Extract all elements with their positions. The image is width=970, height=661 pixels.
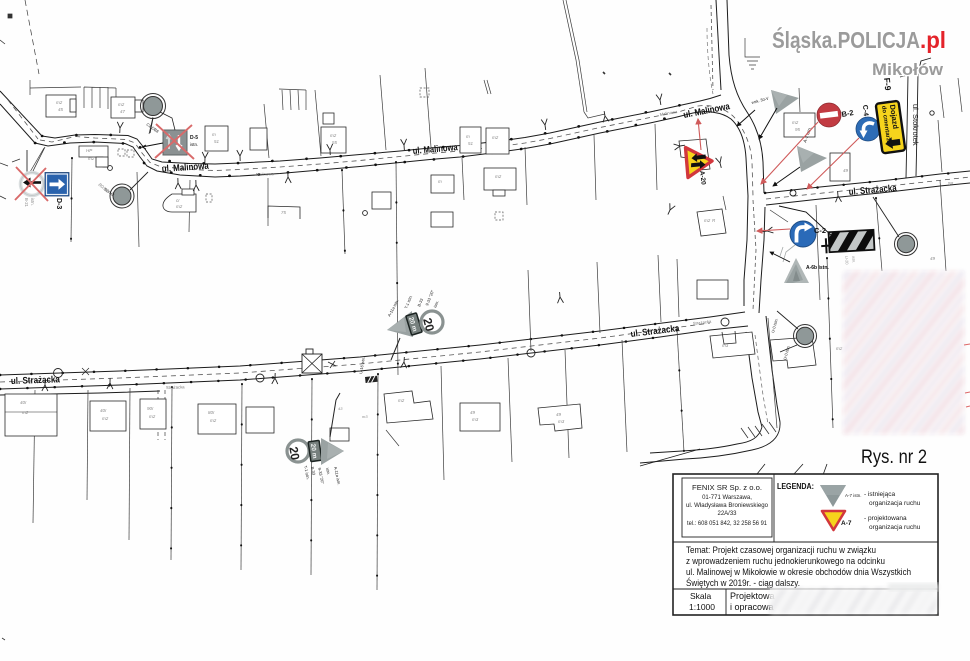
svg-text:istn.: istn. (190, 142, 198, 147)
svg-text:20: 20 (286, 446, 302, 462)
svg-text:Skala: Skala (690, 591, 712, 601)
svg-text:49: 49 (470, 410, 476, 415)
svg-text:55: 55 (332, 140, 338, 145)
svg-text:Strażacka: Strażacka (166, 384, 185, 390)
svg-text:m2: m2 (56, 100, 63, 105)
svg-text:m2: m2 (22, 410, 29, 415)
svg-text:C-2: C-2 (814, 226, 826, 235)
svg-text:m2: m2 (704, 218, 711, 223)
svg-text:80r: 80r (208, 410, 215, 415)
svg-text:Temat: Projekt czasowej organi: Temat: Projekt czasowej organizacji ruch… (686, 545, 876, 556)
svg-text:ul. Strażacka: ul. Strażacka (11, 374, 61, 387)
svg-text:m3: m3 (362, 414, 368, 419)
svg-text:m2: m2 (88, 156, 95, 161)
svg-text:m2: m2 (118, 102, 125, 107)
svg-text:22A/33: 22A/33 (717, 511, 737, 517)
svg-text:- projektowana: - projektowana (864, 515, 907, 522)
svg-text:C-4: C-4 (861, 105, 869, 117)
svg-text:istn.: istn. (30, 198, 35, 206)
svg-text:U-20: U-20 (844, 256, 850, 266)
svg-text:.pl: .pl (920, 27, 946, 53)
svg-text:49: 49 (556, 412, 562, 417)
svg-text:i opracowa: i opracowa (730, 602, 774, 612)
svg-text:Świętych w 2019r. - ciąg dalsz: Świętych w 2019r. - ciąg dalszy. (686, 577, 800, 589)
svg-text:m3: m3 (558, 419, 565, 424)
svg-text:75: 75 (281, 210, 287, 215)
svg-text:49: 49 (930, 256, 936, 261)
svg-text:m3: m3 (722, 343, 729, 348)
svg-text:D-5: D-5 (190, 135, 198, 141)
svg-text:90r: 90r (147, 406, 154, 411)
svg-text:istn.: istn. (851, 256, 857, 264)
svg-text:01-771 Warszawa,: 01-771 Warszawa, (702, 495, 752, 501)
svg-text:F-9: F-9 (882, 77, 893, 91)
svg-text:43: 43 (338, 406, 343, 411)
svg-text:m2: m2 (330, 133, 337, 138)
svg-text:Projektowa: Projektowa (730, 591, 775, 601)
svg-text:40r: 40r (20, 400, 27, 405)
svg-text:A-6b istn.: A-6b istn. (806, 265, 829, 271)
svg-text:m2: m2 (149, 414, 156, 419)
svg-text:m2: m2 (398, 398, 405, 403)
svg-text:m: m (212, 132, 216, 137)
svg-text:m: m (466, 134, 470, 139)
svg-text:m2: m2 (176, 204, 183, 209)
svg-text:m2: m2 (492, 135, 499, 140)
svg-text:A-7 istn.: A-7 istn. (845, 493, 862, 498)
svg-text:m2: m2 (210, 418, 217, 423)
svg-text:m2: m2 (836, 346, 843, 351)
svg-text:ul. Stokrotek: ul. Stokrotek (911, 104, 920, 146)
svg-text:- istniejąca: - istniejąca (864, 491, 895, 498)
svg-text:m2: m2 (102, 416, 109, 421)
svg-text:Malinowa: Malinowa (256, 171, 275, 177)
svg-text:HP: HP (86, 148, 92, 153)
svg-text:m2: m2 (792, 120, 799, 125)
svg-text:z wprowadzeniem ruchu jednokie: z wprowadzeniem ruchu jednokierunkowego … (686, 556, 885, 567)
svg-text:51: 51 (214, 139, 220, 144)
svg-text:95: 95 (795, 127, 801, 132)
svg-text:LEGENDA:: LEGENDA: (777, 481, 814, 491)
svg-text:organizacja ruchu: organizacja ruchu (869, 500, 921, 507)
svg-text:Rys. nr 2: Rys. nr 2 (861, 447, 927, 468)
svg-text:45: 45 (58, 107, 64, 112)
svg-text:Śląska.POLICJA: Śląska.POLICJA (772, 26, 920, 53)
svg-text:51: 51 (468, 141, 474, 146)
svg-text:A-7: A-7 (841, 520, 852, 527)
svg-text:D-3: D-3 (55, 198, 62, 209)
svg-text:m3: m3 (472, 417, 479, 422)
svg-text:cr: cr (176, 198, 180, 203)
svg-text:organizacja ruchu: organizacja ruchu (869, 524, 921, 531)
svg-text:tel.: 608 051 842, 32 258 56 9: tel.: 608 051 842, 32 258 56 91 (687, 521, 768, 527)
svg-text:47: 47 (120, 109, 126, 114)
svg-text:ul. Władysława Broniewskiego: ul. Władysława Broniewskiego (686, 503, 769, 509)
svg-text:ul. Malinowej w Mikołowie w ok: ul. Malinowej w Mikołowie w okresie obch… (686, 567, 911, 578)
svg-text:B-21: B-21 (24, 198, 29, 208)
svg-text:1:1000: 1:1000 (689, 602, 715, 612)
svg-text:m2: m2 (495, 174, 502, 179)
svg-text:m: m (438, 179, 442, 184)
svg-text:FENIX SR Sp. z o.o.: FENIX SR Sp. z o.o. (692, 483, 762, 492)
svg-text:40r: 40r (100, 408, 107, 413)
svg-text:Mikołów: Mikołów (872, 60, 944, 79)
svg-text:49: 49 (843, 168, 849, 173)
